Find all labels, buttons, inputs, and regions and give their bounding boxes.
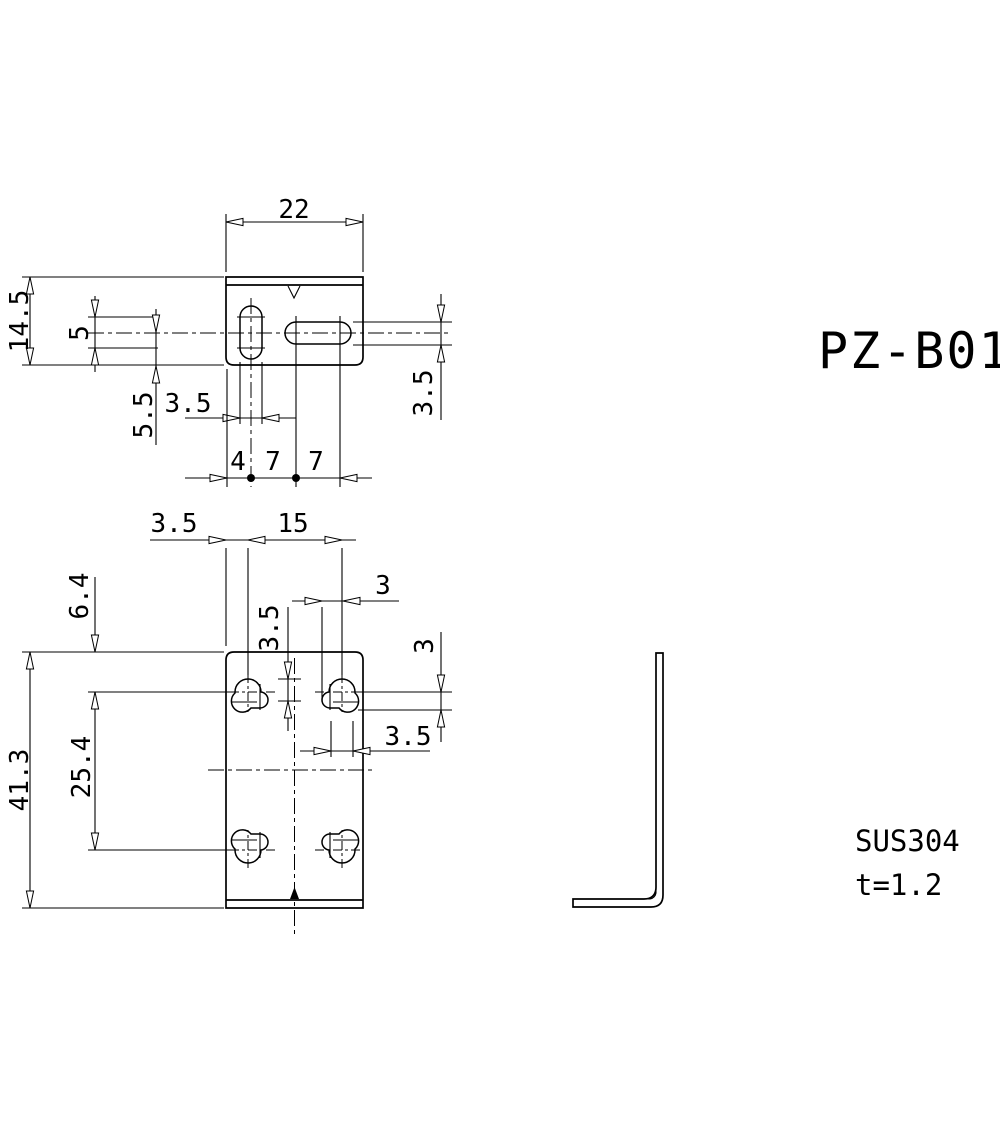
dim-flange-depth: 14.5 — [5, 277, 224, 365]
dim-label-4: 4 — [230, 447, 246, 477]
dim-label-3-5-bottom: 3.5 — [385, 722, 432, 752]
dim-top-width: 22 — [226, 195, 363, 272]
dim-label-3-right: 3 — [410, 638, 440, 654]
hole-top-left — [230, 674, 275, 712]
part-number-label: PZ-B01 — [818, 322, 1000, 380]
dim-label-3-top: 3 — [375, 571, 391, 601]
dim-label-3-5-slot: 3.5 — [165, 389, 212, 419]
dim-label-41-3: 41.3 — [5, 749, 35, 812]
dim-top-to-row: 6.4 — [22, 573, 236, 692]
hole-bottom-left — [230, 830, 275, 868]
bend-radius-detail — [646, 889, 656, 899]
dim-label-6-4: 6.4 — [65, 573, 95, 620]
dim-label-22: 22 — [278, 195, 309, 225]
dim-node-dot — [292, 474, 300, 482]
front-view: 3.5 15 3 3.5 3 — [5, 509, 452, 936]
dim-row-pitch: 25.4 — [67, 692, 236, 850]
hole-bottom-right — [315, 830, 360, 868]
dim-label-15: 15 — [277, 509, 308, 539]
dim-label-5-5: 5.5 — [129, 392, 159, 439]
dim-hole-pitch-row: 3.5 15 — [150, 509, 356, 675]
cad-drawing-canvas: 22 14.5 5 5.5 — [0, 0, 1000, 1126]
bend-mark-v-icon — [288, 286, 300, 298]
dim-label-3-5-hslot: 3.5 — [409, 370, 439, 417]
dim-total-height: 41.3 — [5, 652, 224, 908]
top-view-outline — [226, 277, 363, 365]
dim-node-dot — [247, 474, 255, 482]
dim-label-14-5: 14.5 — [5, 290, 35, 353]
dim-slot-length: 5 — [65, 296, 158, 372]
material-label: SUS304 — [855, 824, 960, 858]
cad-drawing: 22 14.5 5 5.5 — [0, 0, 1000, 1122]
dim-label-7b: 7 — [308, 447, 324, 477]
side-view-outline — [573, 653, 663, 907]
side-view — [573, 653, 663, 907]
dim-label-3-5-mid: 3.5 — [255, 605, 285, 652]
thickness-label: t=1.2 — [855, 868, 942, 902]
dim-lobe-width: 3.5 — [300, 721, 431, 757]
bend-direction-arrow-icon — [290, 887, 299, 899]
dim-label-3-5-edge: 3.5 — [151, 509, 198, 539]
dim-label-7a: 7 — [265, 447, 281, 477]
dim-slot-center-offset: 5.5 — [129, 309, 160, 445]
dim-slot-width: 3.5 — [165, 362, 296, 424]
dim-hslot-width: 3.5 — [353, 294, 452, 420]
dim-hole-pitches: 4 7 7 — [185, 369, 372, 487]
top-view: 22 14.5 5 5.5 — [5, 195, 452, 487]
dim-notch-x: 3 — [292, 571, 399, 702]
dim-label-5: 5 — [65, 325, 95, 341]
dim-label-25-4: 25.4 — [67, 736, 97, 799]
